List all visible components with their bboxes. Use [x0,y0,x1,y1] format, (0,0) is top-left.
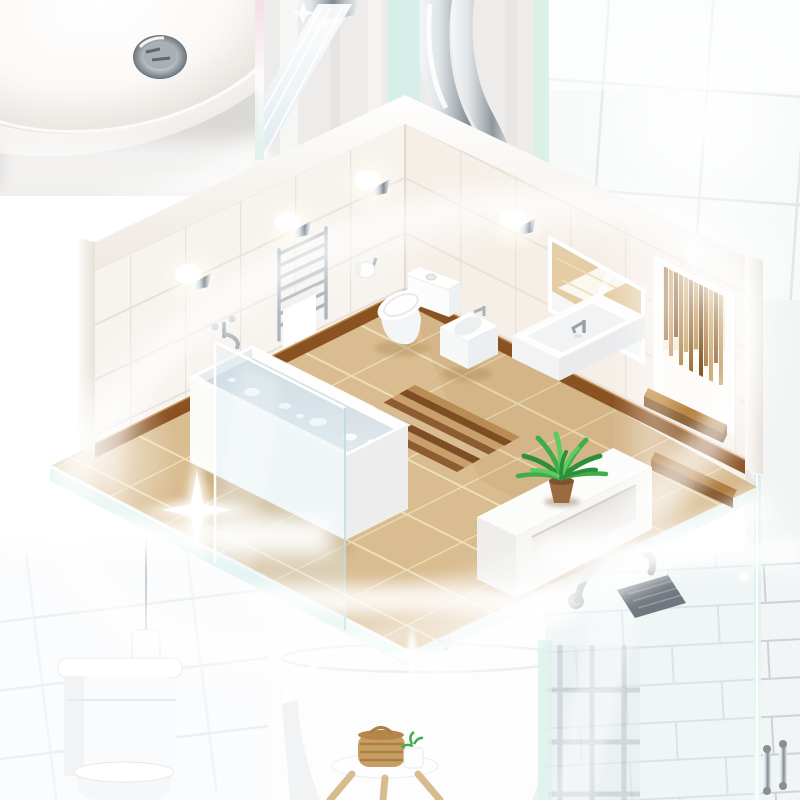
prism-strip [255,0,264,160]
door-handle-bar [779,742,787,788]
door-handle-bar [763,747,771,793]
mint-strip [538,640,552,800]
mint-strip [533,0,549,178]
sconce-light [340,154,400,214]
mini-plant-pot [404,748,423,768]
collage-artwork [0,0,800,800]
bathroom-collage-poster [0,0,800,800]
toilet-tank-lid [58,658,182,678]
